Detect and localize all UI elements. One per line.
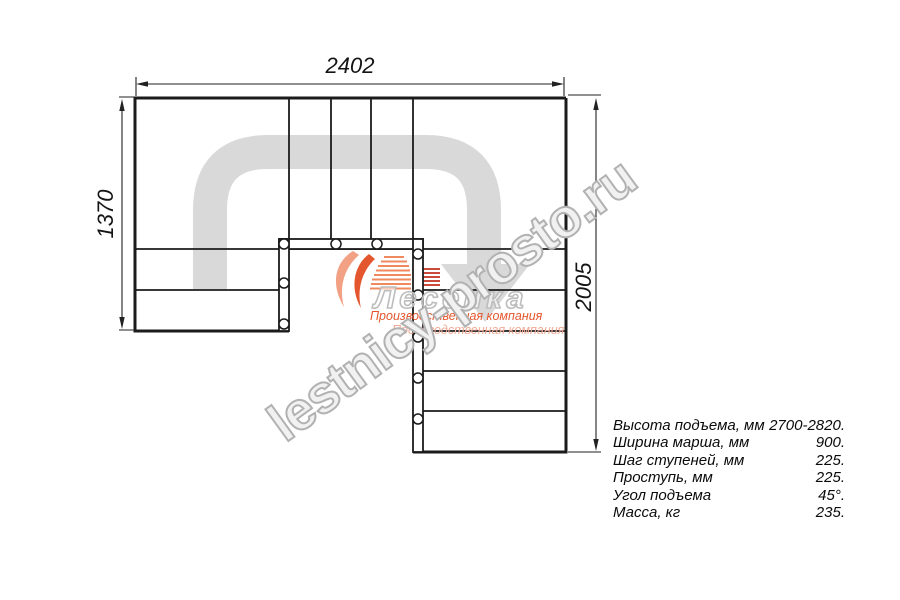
spec-label: Шаг ступеней, мм (613, 452, 744, 469)
staircase-plan-page: 2402 1370 2005 Лесенка Производственная … (0, 0, 900, 600)
spec-label: Высота подъема, мм (613, 417, 765, 434)
spec-value: 225. (816, 469, 845, 486)
spec-row: Шаг ступеней, мм 225. (613, 452, 845, 469)
spec-label: Угол подъема (613, 487, 711, 504)
spec-label: Масса, кг (613, 504, 680, 521)
dimension-left-value: 1370 (93, 190, 119, 239)
spec-label: Проступь, мм (613, 469, 713, 486)
spec-value: 235. (816, 504, 845, 521)
spec-value: 225. (816, 452, 845, 469)
spec-value: 2700-2820. (769, 417, 845, 434)
spec-row: Ширина марша, мм 900. (613, 434, 845, 451)
spec-value: 900. (816, 434, 845, 451)
spec-row: Проступь, мм 225. (613, 469, 845, 486)
spec-row: Масса, кг 235. (613, 504, 845, 521)
spec-row: Высота подъема, мм 2700-2820. (613, 417, 845, 434)
spec-label: Ширина марша, мм (613, 434, 749, 451)
dimension-right-value: 2005 (571, 263, 597, 312)
spec-row: Угол подъема 45°. (613, 487, 845, 504)
dimension-top-value: 2402 (326, 53, 375, 79)
specs-table: Высота подъема, мм 2700-2820. Ширина мар… (613, 417, 845, 521)
spec-value: 45°. (818, 487, 845, 504)
